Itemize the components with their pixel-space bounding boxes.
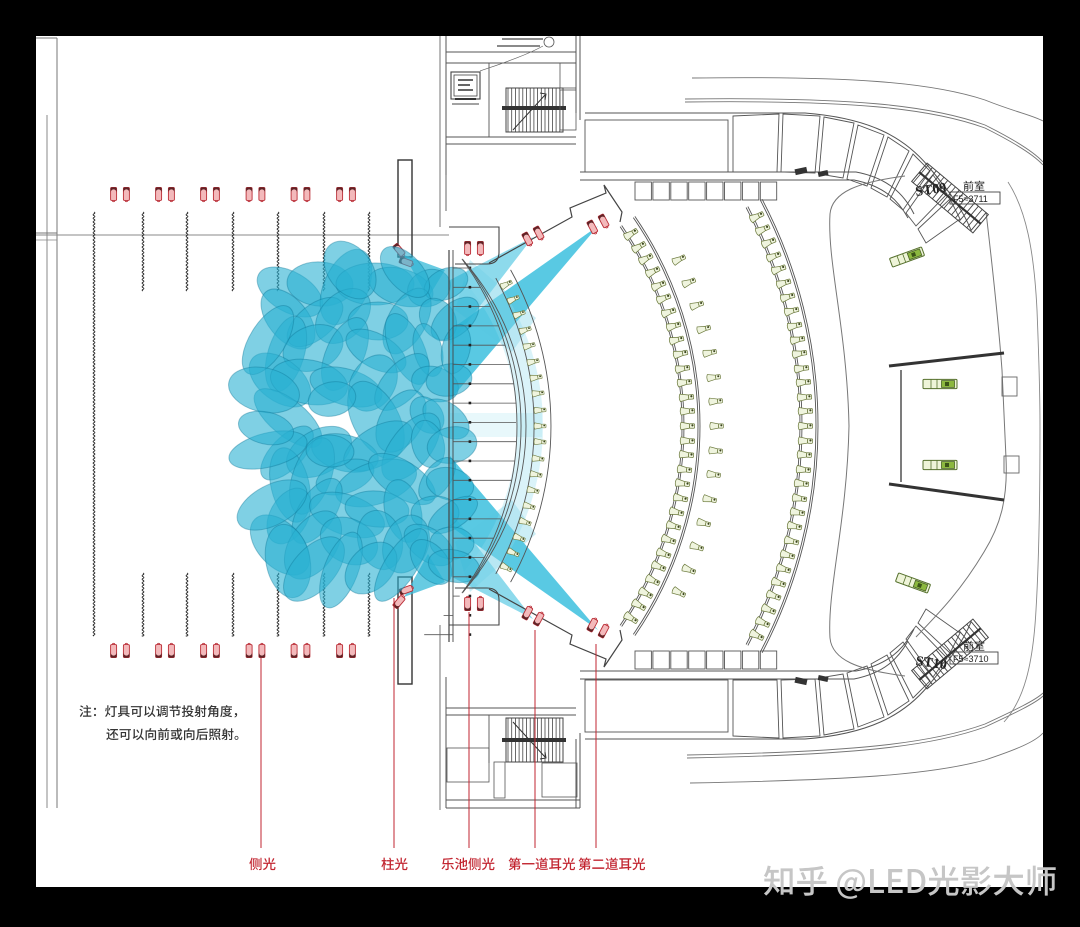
svg-text:F5≈3710: F5≈3710: [953, 654, 988, 664]
svg-text:F5≈3711: F5≈3711: [953, 194, 988, 204]
